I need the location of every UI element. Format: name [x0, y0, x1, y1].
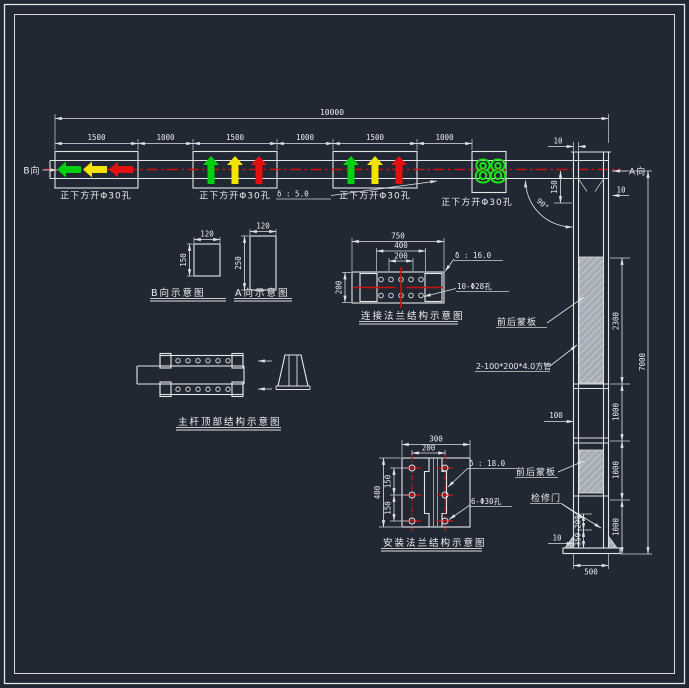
title-underline — [381, 549, 482, 551]
dim-7000-label: 7000 — [638, 352, 647, 371]
hole-note: 正下方开Φ30孔 — [199, 190, 271, 202]
detail-pole-top: 主杆顶部结构示意图 — [137, 354, 310, 431]
sign-panel-upper — [579, 257, 604, 383]
detail-connection-flange: 750 400 200 200 δ : 16.0 10-Φ28孔 连接法兰结构示… — [335, 232, 510, 325]
beam-thickness-note: δ : 5.0 — [277, 190, 309, 199]
door-label: 检修门 — [531, 492, 561, 504]
bolt-hole — [409, 293, 414, 298]
panel-lower-label: 前后蒙板 — [516, 466, 556, 478]
dim-base-wall-label: 10 — [552, 534, 562, 543]
dim-500-label: 500 — [584, 568, 598, 577]
anchor-hole-center — [444, 467, 446, 469]
cad-drawing-canvas: 10000 1500 1000 1500 1000 1500 1000 — [0, 0, 689, 688]
bolt-hole — [176, 359, 180, 363]
b-view-section — [194, 244, 220, 276]
dim-offset-label: 100 — [549, 411, 563, 420]
angle-label: 90° — [535, 196, 551, 212]
bolt-hole — [196, 387, 200, 391]
bolt-span-label: 400 — [394, 241, 408, 250]
bolt-hole — [216, 359, 220, 363]
hole-note: 正下方开Φ30孔 — [339, 190, 411, 202]
signal-arrows-right-box — [343, 156, 407, 184]
dim-1000-label: 1000 — [612, 402, 621, 421]
conn-flange-title: 连接法兰结构示意图 — [361, 310, 465, 322]
plate-width-label: 300 — [429, 435, 443, 444]
anchor-hole-center — [411, 467, 413, 469]
dim-drop-label: 150 — [550, 180, 559, 194]
signal-arrows-left-box — [57, 162, 133, 178]
bolt-hole — [196, 359, 200, 363]
bolt-hole — [226, 359, 230, 363]
anchor-hole-center — [411, 494, 413, 496]
install-flange-title: 安装法兰结构示意图 — [383, 537, 487, 549]
anchor-hole-center — [444, 520, 446, 522]
a-view-height-label: 250 — [234, 256, 243, 270]
cad-drawing: 10000 1500 1000 1500 1000 1500 1000 — [0, 0, 689, 688]
bolt-hole — [379, 293, 384, 298]
bolt-hole — [186, 387, 190, 391]
view-b-label: B向 — [23, 165, 40, 177]
b-view-width-label: 120 — [200, 230, 214, 239]
thickness-leader — [445, 259, 454, 272]
dim-seg-label: 1000 — [296, 133, 315, 142]
title-underline — [176, 428, 281, 430]
bolt-hole — [389, 293, 394, 298]
wall-ext-lines — [574, 142, 579, 151]
pitch-lower-label: 150 — [384, 501, 393, 515]
dim-seg-label: 1500 — [366, 133, 385, 142]
bolt-hole — [176, 387, 180, 391]
green-left-arrow-icon — [57, 162, 81, 178]
dim-total-label: 10000 — [320, 108, 344, 117]
bolt-hole — [409, 277, 414, 282]
pitch-upper-label: 150 — [384, 474, 393, 488]
hole-note: 正下方开Φ30孔 — [441, 196, 513, 208]
base-gusset-right — [609, 536, 618, 548]
dim-1000-label: 1000 — [612, 517, 621, 536]
thickness-note: δ : 16.0 — [455, 251, 492, 260]
bolt-hole — [206, 387, 210, 391]
bolt-hole — [379, 277, 384, 282]
dim-seg-label: 1500 — [226, 133, 245, 142]
beam-extension-lines — [55, 114, 609, 150]
pole-top-title: 主杆顶部结构示意图 — [178, 416, 282, 428]
clamp-bolt-holes — [176, 359, 230, 392]
anchor-hole-center — [411, 520, 413, 522]
dim-1000-label: 1000 — [612, 460, 621, 479]
dim-seg-label: 1000 — [435, 133, 454, 142]
dim-wall-right-label: 10 — [616, 186, 626, 195]
bolt-hole — [226, 387, 230, 391]
holes-note: 6-Φ30孔 — [471, 497, 502, 506]
hole-note: 正下方开Φ30孔 — [60, 190, 132, 202]
yellow-left-arrow-icon — [83, 162, 107, 178]
dim-wall-label: 10 — [553, 137, 563, 146]
detail-install-flange: 300 200 400 150 150 δ : 18.0 6-Φ30孔 安装法兰… — [373, 435, 517, 552]
bolt-span-label: 200 — [422, 444, 436, 453]
view-a-label: A向 — [629, 166, 646, 178]
beam-bracket-gussets — [579, 179, 604, 192]
dim-350-label: 350 — [574, 532, 583, 546]
inner-frame — [15, 15, 675, 674]
wedge-block — [278, 355, 308, 386]
base-plate — [563, 548, 620, 554]
bolt-pitch-label: 200 — [394, 252, 408, 261]
bolt-hole — [216, 387, 220, 391]
detail-b-view: 120 150 B向示意图 — [150, 230, 226, 302]
dim-seg-label: 1000 — [156, 133, 175, 142]
b-view-title: B向示意图 — [151, 287, 206, 299]
beam-tube-section — [137, 366, 244, 384]
red-left-arrow-icon — [109, 162, 133, 178]
base-gusset-left — [565, 536, 574, 548]
title-underline — [359, 322, 458, 324]
holes-leader — [424, 289, 456, 297]
a-view-width-label: 120 — [256, 222, 270, 231]
a-view-section — [250, 236, 276, 290]
sign-panel-lower — [579, 450, 604, 493]
bolt-hole — [419, 293, 424, 298]
countdown-display: 88 — [474, 155, 506, 190]
title-underline — [234, 299, 292, 301]
bolt-hole — [186, 359, 190, 363]
ext-lines — [187, 237, 220, 276]
tube-label: 2-100*200*4.0方管 — [476, 361, 551, 371]
anchor-hole-center — [444, 494, 446, 496]
bolt-hole — [389, 277, 394, 282]
dim-seg-label: 1500 — [87, 133, 106, 142]
plate-height-label: 400 — [373, 485, 382, 499]
signal-arrows-middle-box — [203, 156, 267, 184]
bolt-hole — [206, 359, 210, 363]
title-underline — [150, 299, 226, 301]
flange-height-label: 200 — [335, 280, 344, 294]
holes-note: 10-Φ28孔 — [457, 282, 492, 291]
thickness-note: δ : 18.0 — [469, 459, 506, 468]
detail-a-view: 120 250 A向示意图 — [234, 222, 292, 302]
bolt-hole — [419, 277, 424, 282]
ext-lines — [241, 229, 276, 290]
panel-upper-label: 前后蒙板 — [497, 316, 537, 328]
a-view-title: A向示意图 — [235, 287, 290, 299]
b-view-height-label: 150 — [179, 253, 188, 267]
thickness-leader — [448, 468, 468, 487]
flange-width-label: 750 — [391, 232, 405, 241]
holes-leader — [449, 505, 470, 520]
dim-200-label: 200 — [574, 515, 583, 529]
dim-2300-label: 2300 — [612, 311, 621, 330]
